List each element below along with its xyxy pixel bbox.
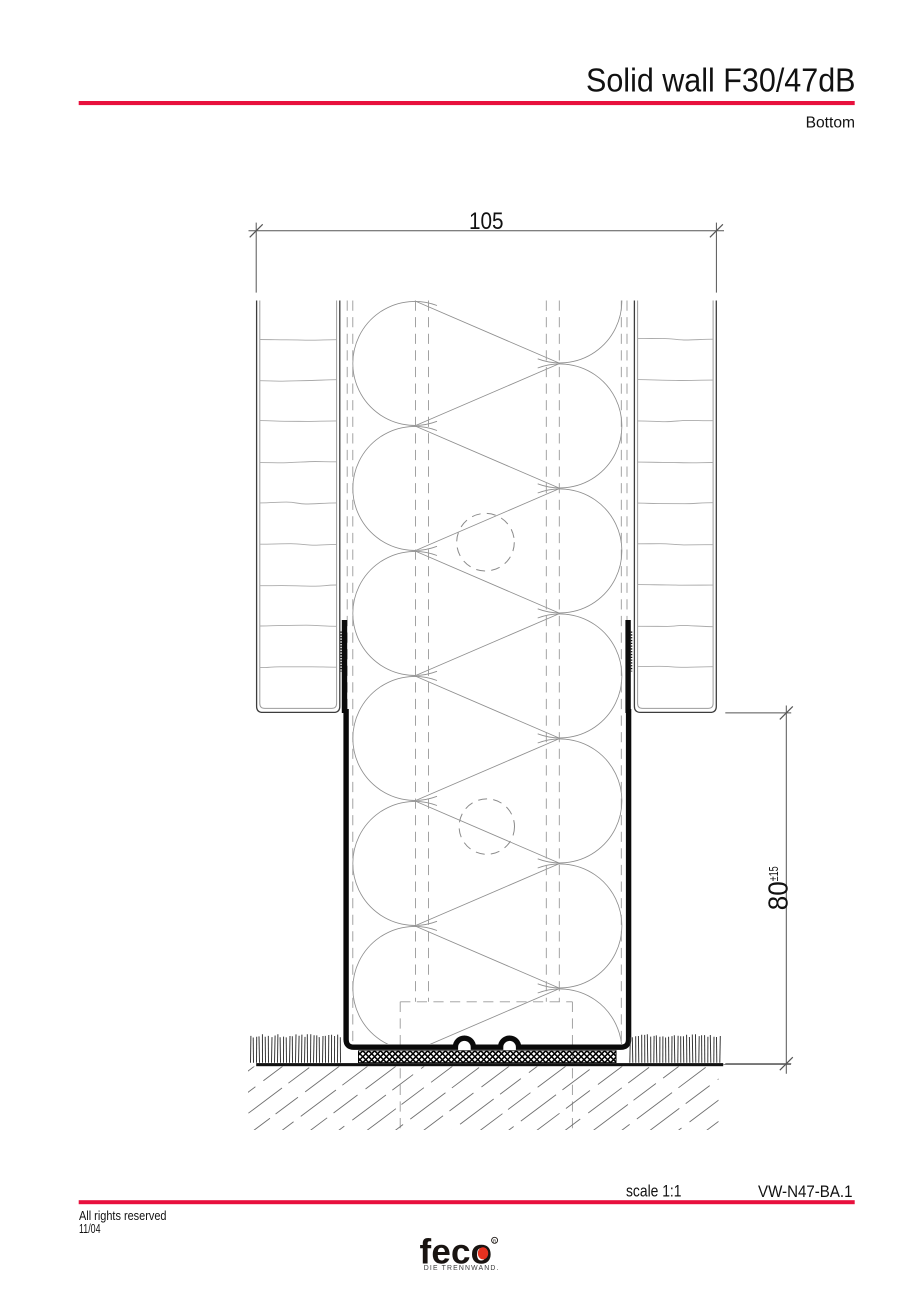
svg-text:scale 1:1: scale 1:1 — [626, 1182, 682, 1201]
svg-text:105: 105 — [469, 208, 504, 235]
svg-text:11/04: 11/04 — [79, 1221, 101, 1236]
svg-text:80: 80 — [763, 881, 794, 910]
svg-text:VW-N47-BA.1: VW-N47-BA.1 — [758, 1182, 853, 1201]
svg-text:±15: ±15 — [767, 866, 781, 881]
svg-text:Solid wall F30/47dB: Solid wall F30/47dB — [586, 63, 856, 100]
svg-text:DIE TRENNWAND.: DIE TRENNWAND. — [424, 1265, 500, 1272]
svg-text:Bottom: Bottom — [806, 115, 855, 132]
